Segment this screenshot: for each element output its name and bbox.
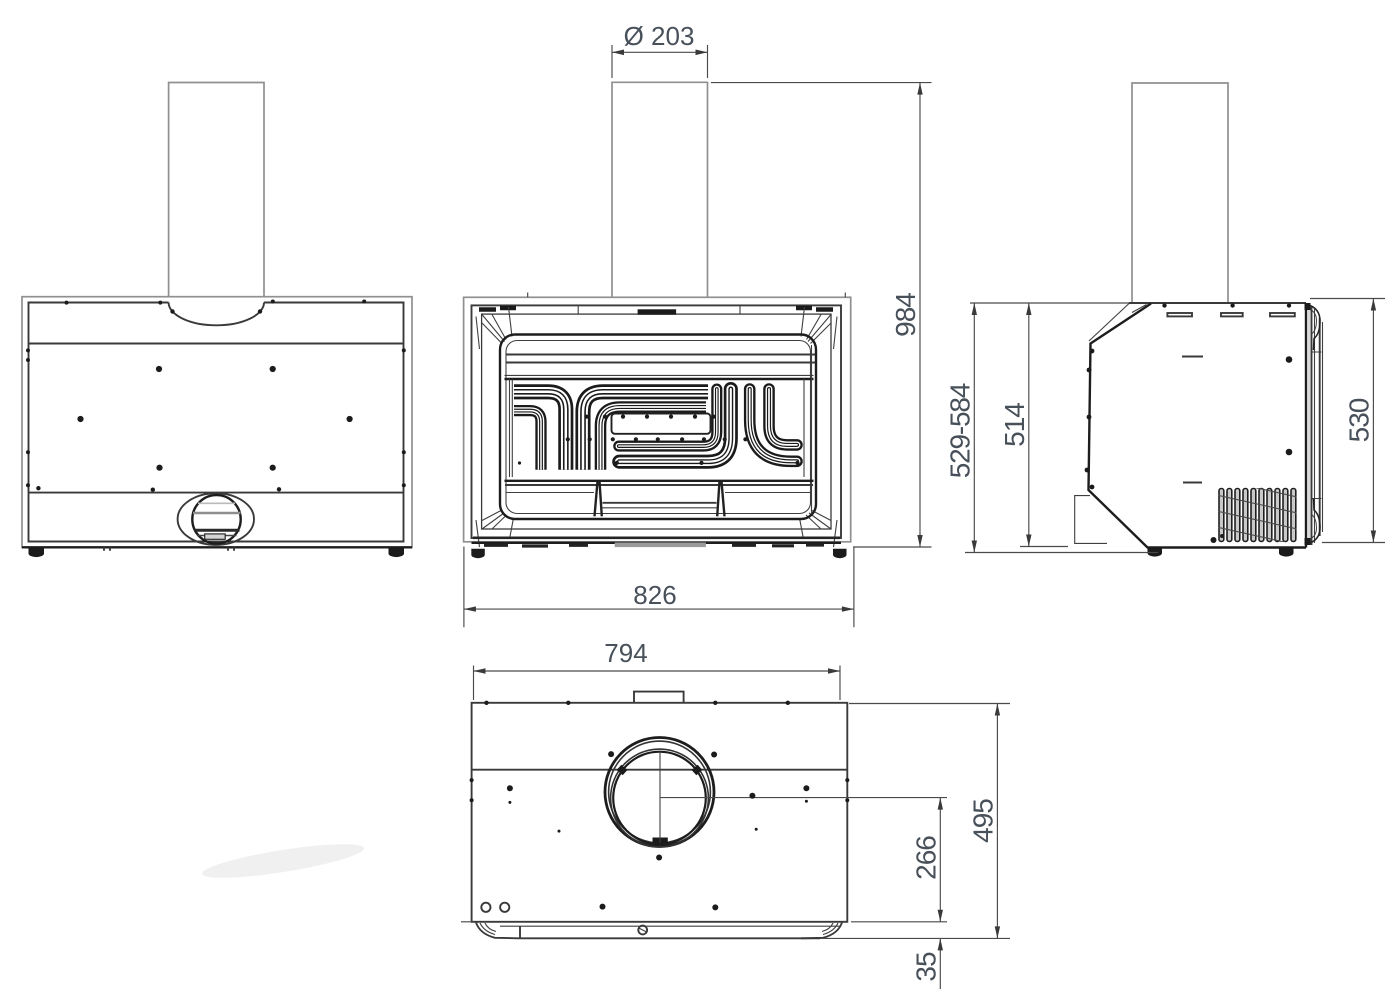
- svg-text:530: 530: [1343, 398, 1374, 442]
- svg-text:266: 266: [910, 836, 941, 880]
- svg-text:514: 514: [999, 403, 1030, 447]
- svg-text:529-584: 529-584: [944, 383, 975, 478]
- svg-text:794: 794: [604, 638, 647, 668]
- svg-text:984: 984: [890, 293, 921, 337]
- svg-text:826: 826: [633, 580, 676, 610]
- svg-text:35: 35: [910, 952, 941, 982]
- svg-text:495: 495: [967, 799, 998, 843]
- svg-text:Ø 203: Ø 203: [624, 21, 695, 51]
